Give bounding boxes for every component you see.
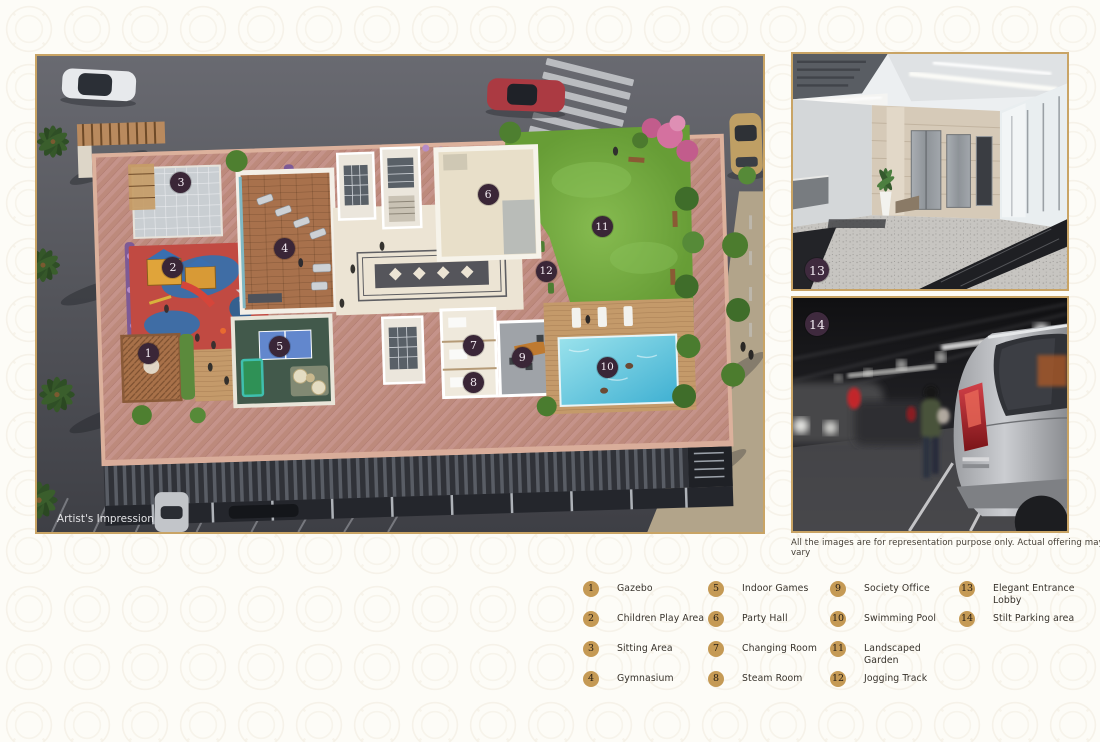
legend-number-badge: 1 <box>583 581 599 597</box>
plan-marker-7: 7 <box>463 335 484 356</box>
plan-marker-6: 6 <box>478 184 499 205</box>
legend-item-4: 4Gymnasium <box>583 671 708 688</box>
legend-label: Gymnasium <box>617 671 708 685</box>
legend-label: Jogging Track <box>864 671 956 685</box>
legend-item-5: 5Indoor Games <box>708 581 830 598</box>
legend-number-badge: 14 <box>959 611 975 627</box>
legend-number-badge: 5 <box>708 581 724 597</box>
plan-marker-3: 3 <box>170 172 191 193</box>
legend-column: 5Indoor Games6Party Hall7Changing Room8S… <box>708 581 830 701</box>
legend-label: Gazebo <box>617 581 708 595</box>
legend-label: Indoor Games <box>742 581 830 595</box>
photo-marker-14: 14 <box>805 312 829 336</box>
legend-number-badge: 10 <box>830 611 846 627</box>
legend-item-12: 12Jogging Track <box>830 671 959 688</box>
legend-item-10: 10Swimming Pool <box>830 611 959 628</box>
legend-number-badge: 12 <box>830 671 846 687</box>
legend-column: 1Gazebo2Children Play Area3Sitting Area4… <box>583 581 708 701</box>
ceiling-panel <box>888 54 1067 101</box>
lobby-illustration <box>793 54 1067 289</box>
legend-number-badge: 2 <box>583 611 599 627</box>
disclaimer-caption: All the images are for representation pu… <box>791 538 1100 558</box>
legend-number-badge: 11 <box>830 641 846 657</box>
legend-label: Sitting Area <box>617 641 708 655</box>
legend-item-8: 8Steam Room <box>708 671 830 688</box>
legend-label: Changing Room <box>742 641 830 655</box>
legend-item-14: 14Stilt Parking area <box>959 611 1091 628</box>
legend-label: Elegant Entrance Lobby <box>993 581 1085 607</box>
legend-label: Party Hall <box>742 611 830 625</box>
legend-number-badge: 9 <box>830 581 846 597</box>
legend-item-11: 11Landscaped Garden <box>830 641 959 658</box>
legend: 1Gazebo2Children Play Area3Sitting Area4… <box>583 581 1091 701</box>
photo-marker-13: 13 <box>805 258 829 282</box>
plan-markers: 123456789101112 <box>37 56 763 532</box>
legend-item-7: 7Changing Room <box>708 641 830 658</box>
site-plan-image: Artist's Impression 123456789101112 <box>35 54 765 534</box>
legend-item-3: 3Sitting Area <box>583 641 708 658</box>
legend-number-badge: 7 <box>708 641 724 657</box>
plan-marker-2: 2 <box>162 257 183 278</box>
legend-label: Society Office <box>864 581 956 595</box>
legend-item-1: 1Gazebo <box>583 581 708 598</box>
legend-label: Landscaped Garden <box>864 641 956 667</box>
legend-number-badge: 3 <box>583 641 599 657</box>
plan-marker-1: 1 <box>138 343 159 364</box>
legend-label: Stilt Parking area <box>993 611 1085 625</box>
legend-column: 13Elegant Entrance Lobby14Stilt Parking … <box>959 581 1091 701</box>
plan-marker-11: 11 <box>592 216 613 237</box>
plan-marker-10: 10 <box>597 357 618 378</box>
reception-desk <box>793 176 828 209</box>
stilt-parking-photo: 14 <box>791 296 1069 533</box>
legend-item-9: 9Society Office <box>830 581 959 598</box>
legend-label: Steam Room <box>742 671 830 685</box>
entrance-lobby-photo: 13 <box>791 52 1069 291</box>
plan-marker-12: 12 <box>536 261 557 282</box>
legend-label: Swimming Pool <box>864 611 956 625</box>
legend-number-badge: 6 <box>708 611 724 627</box>
legend-label: Children Play Area <box>617 611 708 625</box>
legend-item-13: 13Elegant Entrance Lobby <box>959 581 1091 598</box>
brochure-sheet: Artist's Impression 123456789101112 <box>0 0 1100 742</box>
legend-number-badge: 13 <box>959 581 975 597</box>
parking-illustration <box>793 298 1067 531</box>
plan-marker-5: 5 <box>269 336 290 357</box>
plan-marker-8: 8 <box>463 372 484 393</box>
legend-item-6: 6Party Hall <box>708 611 830 628</box>
plan-marker-4: 4 <box>274 238 295 259</box>
legend-column: 9Society Office10Swimming Pool11Landscap… <box>830 581 959 701</box>
left-wall <box>793 99 872 227</box>
legend-number-badge: 8 <box>708 671 724 687</box>
legend-item-2: 2Children Play Area <box>583 611 708 628</box>
plan-marker-9: 9 <box>512 347 533 368</box>
legend-number-badge: 4 <box>583 671 599 687</box>
